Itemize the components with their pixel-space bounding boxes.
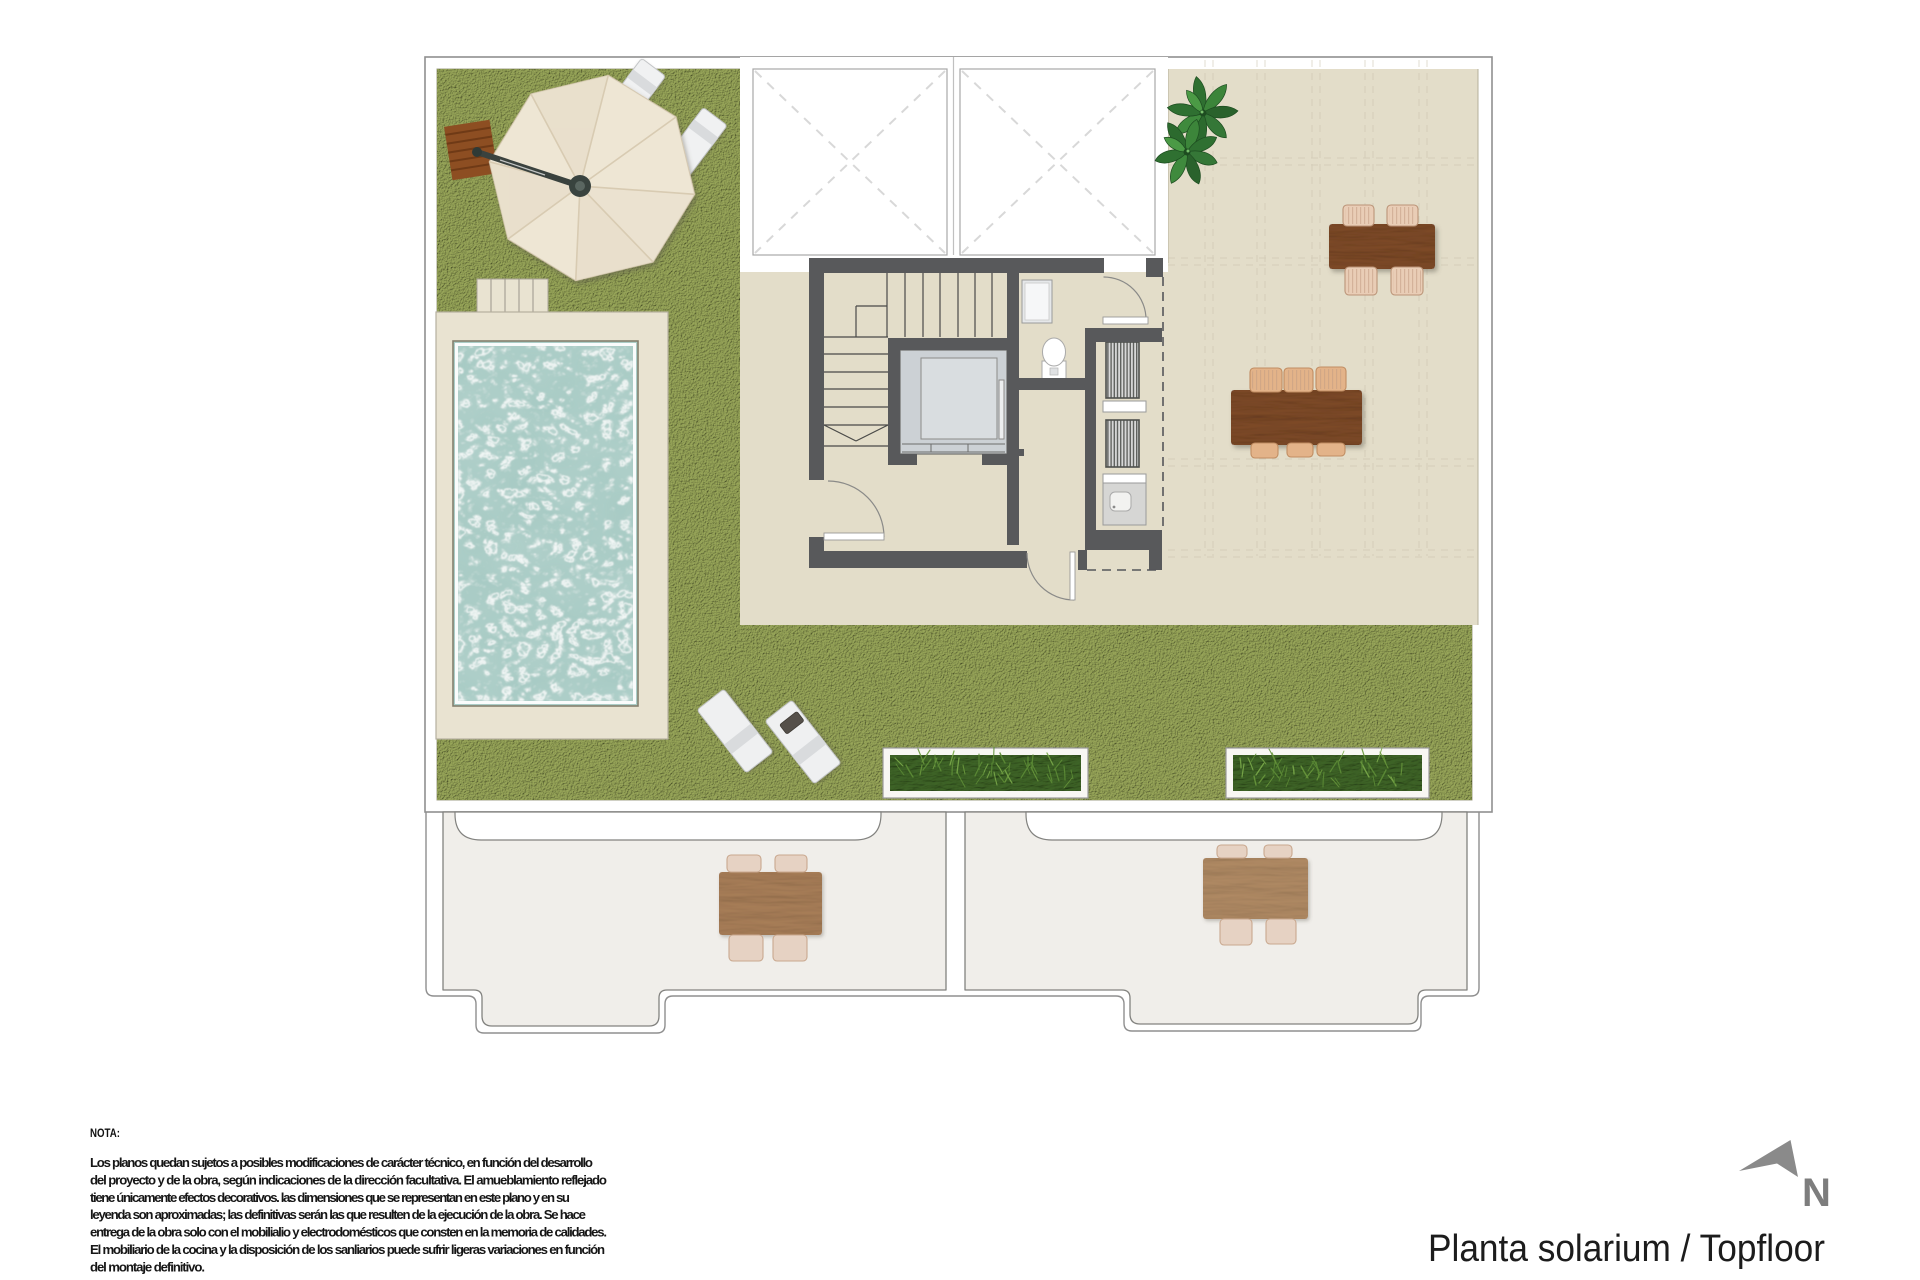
svg-text:del montaje definitivo.: del montaje definitivo.	[90, 1259, 205, 1274]
svg-text:El mobiliario de la cocina y l: El mobiliario de la cocina y la disposic…	[90, 1242, 605, 1257]
svg-text:NOTA:: NOTA:	[90, 1126, 120, 1140]
svg-text:entrega de la obra solo con el: entrega de la obra solo con el mobiliali…	[90, 1225, 607, 1240]
svg-text:leyenda son aproximadas; las d: leyenda son aproximadas; las definitivas…	[90, 1207, 586, 1222]
svg-text:Planta solarium / Topfloor: Planta solarium / Topfloor	[1428, 1228, 1825, 1270]
svg-text:tiene únicamente efectos decor: tiene únicamente efectos decorativos. la…	[90, 1190, 570, 1205]
svg-text:N: N	[1802, 1171, 1831, 1215]
svg-text:Los planos quedan sujetos a po: Los planos quedan sujetos a posibles mod…	[90, 1155, 593, 1170]
svg-text:del proyecto y de la obra, seg: del proyecto y de la obra, según indicac…	[90, 1172, 607, 1187]
